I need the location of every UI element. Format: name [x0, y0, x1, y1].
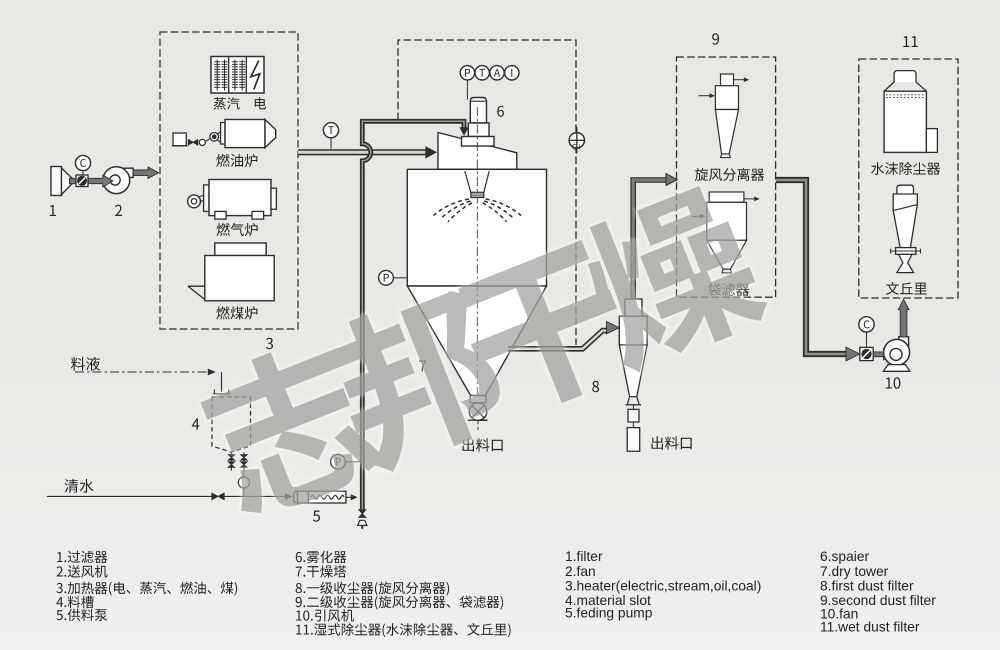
svg-text:1.filter: 1.filter: [565, 549, 603, 564]
svg-text:5.feding pump: 5.feding pump: [565, 606, 653, 621]
svg-text:3.heater(electric,stream,oil,c: 3.heater(electric,stream,oil,coal): [565, 579, 761, 594]
svg-text:11.wet dust filter: 11.wet dust filter: [820, 620, 920, 635]
svg-text:2.fan: 2.fan: [565, 564, 596, 579]
svg-text:7.dry tower: 7.dry tower: [820, 564, 889, 579]
svg-text:6.spaier: 6.spaier: [820, 549, 869, 564]
svg-text:8.first dust filter: 8.first dust filter: [820, 579, 914, 594]
